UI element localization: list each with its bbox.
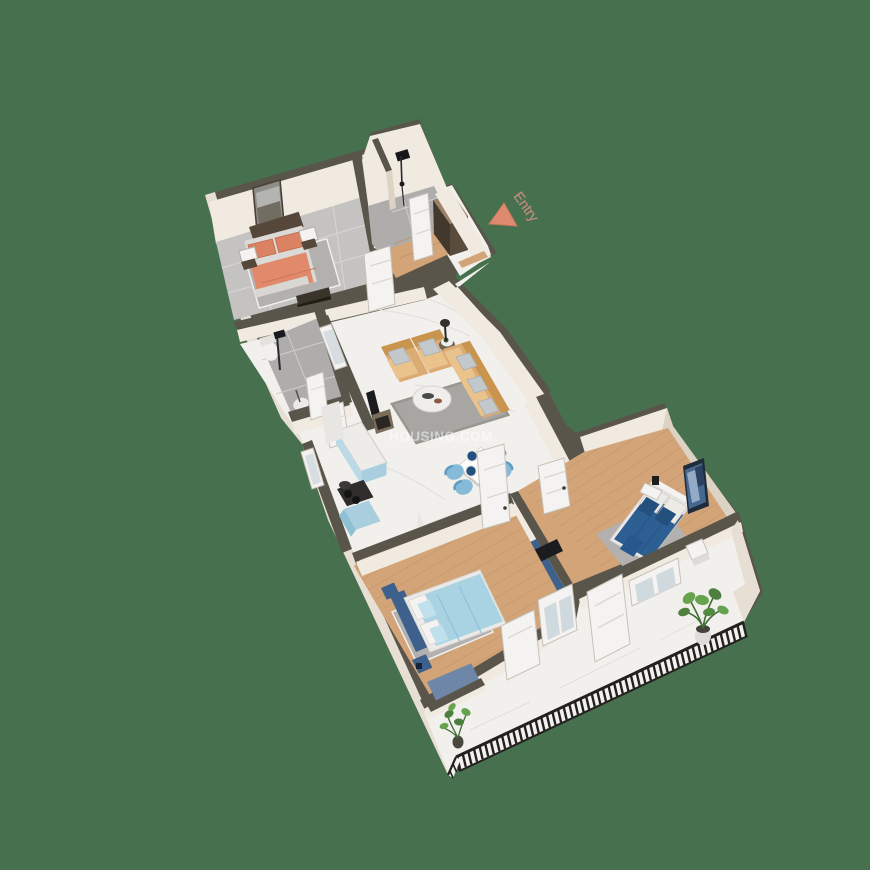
svg-text:HOUSING.COM: HOUSING.COM [389, 429, 493, 444]
